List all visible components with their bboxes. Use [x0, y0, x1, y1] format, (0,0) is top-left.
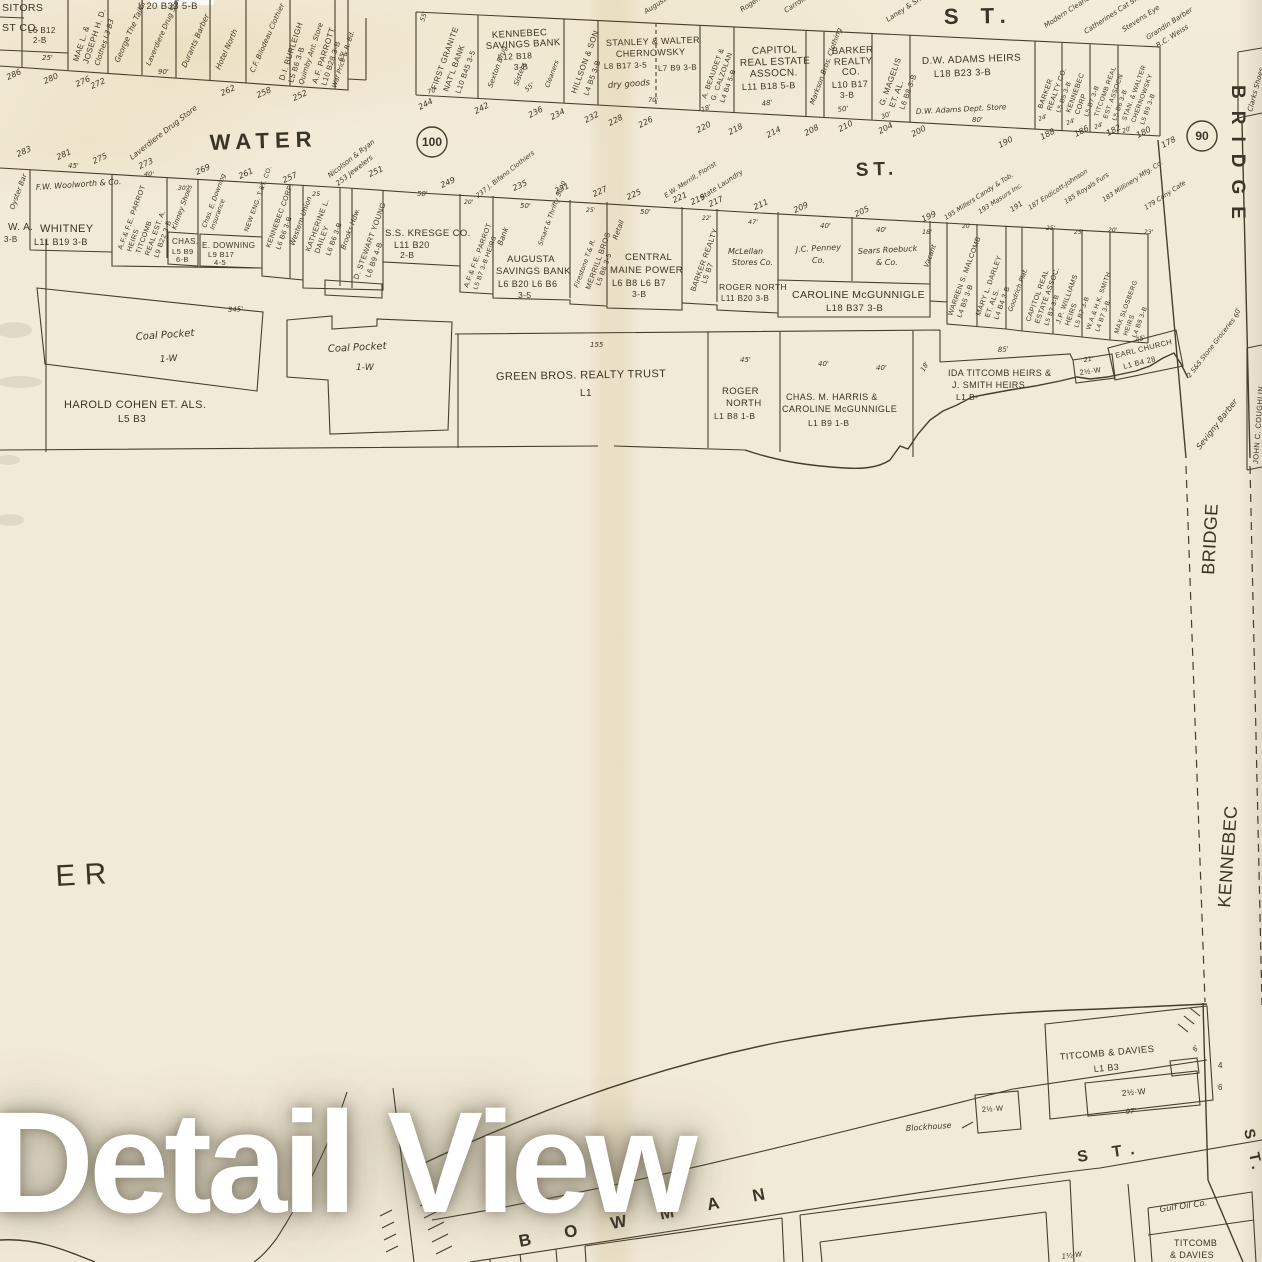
street-number: 235 — [511, 178, 529, 193]
business-label: D.W. Adams Dept. Store — [916, 102, 1007, 116]
parcel-lot-label: L6 B12 — [28, 26, 56, 35]
parcel-owner-label: CAPITOL — [752, 44, 798, 57]
parcel-lot-label: 3-B — [840, 90, 855, 100]
parcel-owner-label: D.W. ADAMS HEIRS — [922, 53, 1022, 67]
route-number: 90 — [1195, 129, 1209, 143]
dimension-label: 40' — [876, 364, 887, 372]
dimension-label: 18' — [700, 103, 712, 114]
parcel-lot-label: 6-B — [176, 255, 189, 264]
dimension-label: 70' — [648, 96, 658, 104]
dimension-label: 50' — [837, 105, 849, 114]
street-number: 205 — [853, 204, 871, 219]
street-number: 178 — [1160, 135, 1178, 150]
business-label: Cleaners — [543, 59, 560, 89]
street-number: 200 — [910, 124, 928, 139]
parcel-owner-label: CO. — [842, 66, 860, 78]
business-label: Co. — [812, 256, 825, 265]
parcel-lot-label: L11 B20 — [394, 240, 430, 250]
street-number: 272 — [89, 76, 107, 91]
watermark: Detail View — [0, 1080, 1252, 1246]
parcel-owner-label: MAINE POWER — [610, 265, 683, 276]
business-label: Rogers — [739, 0, 764, 14]
dimension-label: 40' — [144, 170, 154, 178]
parcel-owner-label: STANLEY & WALTER — [606, 35, 700, 48]
atlas-map-page: SITORS ST CO. L6 B12 2-B MAE L. & JOSEPH… — [0, 0, 1262, 1262]
dimension-label: 24' — [1093, 121, 1104, 131]
parcel-owner-label: CHAS. — [172, 237, 198, 246]
street-number: 180 — [1135, 125, 1153, 140]
building-label: Coal Pocket — [328, 341, 388, 355]
river-name-partial: E R — [55, 857, 108, 893]
street-number: 208 — [803, 123, 821, 138]
parcel-owner-label: SITORS — [2, 2, 43, 14]
street-number: 261 — [237, 166, 255, 181]
business-label: 179 Cony Cafe — [1143, 179, 1187, 212]
paper-stains — [0, 322, 42, 526]
parcel-owner-label: ROGER NORTH — [719, 282, 787, 292]
building-label: 2½·W — [1079, 365, 1102, 377]
parcel-owner-label: CAROLINE McGUNNIGLE — [792, 289, 925, 301]
business-label: J.C. Penney — [794, 243, 842, 254]
parcel-lot-label: 3-5 — [518, 290, 532, 300]
business-label: 237 J. Bifano Clothiers — [474, 149, 536, 200]
business-label: 191 — [1009, 200, 1025, 214]
parcel-lot-label: L6 B20 L6 B6 — [498, 279, 557, 289]
dimension-label: 50' — [417, 190, 428, 198]
parcel-owner-label: E. DOWNING — [202, 241, 255, 250]
dimension-label: 25 — [312, 190, 320, 198]
parcel-owner-label: GREEN BROS. REALTY TRUST — [496, 368, 667, 383]
parcel-lot-label: L7 B9 3-B — [658, 63, 697, 73]
parcel-lot-label: L10 B17 — [832, 79, 869, 90]
dimension-label: 80' — [972, 116, 983, 124]
bridge-name-word: KENNEBEC — [1214, 805, 1241, 908]
dimension-label: 24' — [1037, 113, 1048, 123]
dimension-label: 30' — [880, 110, 892, 121]
parcel-owner-label: CHERNOWSKY — [616, 47, 686, 59]
dimension-label: 22' — [702, 215, 712, 222]
street-name-water-st: ST. — [855, 159, 898, 181]
street-name-top-st: S T. — [944, 3, 1014, 29]
parcel-lot-label: L11 B20 3-B — [721, 294, 769, 303]
dimension-label: 20' — [1108, 227, 1118, 234]
street-number: 244 — [417, 97, 435, 112]
dimension-label: 18' — [922, 228, 932, 236]
dimension-label: 25' — [586, 207, 596, 214]
dimension-label: 25' — [42, 54, 53, 62]
parcel-owner-label: REAL ESTATE — [740, 56, 811, 69]
street-number: 211 — [752, 197, 770, 212]
parcel-owner-label: J. SMITH HEIRS — [952, 380, 1025, 390]
street-number: 182 — [1105, 123, 1123, 138]
parcel-lot-label: 3-B — [632, 289, 646, 299]
business-label: Stores Co. — [732, 258, 773, 267]
street-number: 218 — [727, 122, 745, 137]
street-number: 269 — [194, 162, 212, 177]
business-label: Sears Roebuck — [858, 244, 918, 256]
parcel-lot-label: L11 B18 5-B — [742, 80, 796, 92]
parcel-lot-label: L1 B3 — [1093, 1062, 1119, 1074]
street-number: 273 — [137, 156, 155, 171]
business-label: Bank — [495, 225, 510, 246]
business-label: Carrolls Perfume — [783, 0, 836, 15]
street-number: 242 — [473, 101, 491, 116]
business-label: Brooks Hdw. — [339, 207, 361, 251]
dimension-label: 20' — [464, 199, 474, 206]
business-label: & Co. — [876, 258, 898, 267]
dimension-label: 47' — [748, 218, 758, 226]
business-label: Hotel North — [214, 27, 240, 70]
street-number: 190 — [997, 135, 1015, 150]
street-number: 234 — [549, 107, 567, 122]
street-number: 262 — [219, 83, 237, 98]
north-west-block: SITORS ST CO. L6 B12 2-B MAE L. & JOSEPH… — [0, 0, 366, 103]
dimension-label: 24' — [1065, 117, 1076, 127]
street-number: 209 — [792, 200, 810, 215]
dimension-label: 50' — [640, 208, 651, 216]
parcel-lot-label: 3-B — [4, 235, 18, 244]
street-number: 286 — [5, 67, 23, 82]
dimension-label: 55' — [523, 81, 536, 94]
dimension-label: 25' — [1046, 225, 1056, 232]
street-number: 276 — [74, 74, 92, 89]
dimension-label: 60' — [1232, 307, 1242, 319]
street-number: 258 — [255, 85, 273, 100]
business-label: Laverdiere Drug Store — [128, 103, 199, 162]
street-number: 281 — [55, 147, 73, 162]
business-label: Oyster Bar — [8, 172, 29, 211]
parcel-lot-label: L11 B19 3-B — [34, 237, 88, 247]
dimension-label: 18' — [919, 360, 931, 373]
parcel-owner-label: IDA TITCOMB HEIRS & — [948, 368, 1051, 378]
dimension-label: 85' — [998, 345, 1009, 354]
dimension-label: 25' — [1074, 229, 1084, 236]
parcel-lot-label: L1 B9 1-B — [808, 418, 849, 428]
dimension-label: 20' — [1121, 125, 1132, 135]
parcel-lot-label: L6 B8 L6 B7 — [612, 278, 666, 288]
business-label: George The Tailor — [113, 0, 149, 64]
street-number: 227 — [591, 184, 609, 199]
parcel-lot-label: L18 B37 3-B — [826, 303, 883, 314]
street-number: 220 — [695, 120, 713, 135]
dimension-label: 4 — [1218, 1061, 1223, 1070]
parcel-owner-label: ROGER — [722, 386, 759, 397]
parcel-lot-label: L1 B8 1-B — [714, 411, 755, 421]
parcel-owner-label: SAVINGS BANK — [496, 266, 571, 277]
parcel-owner-label: NORTH — [726, 398, 762, 409]
parcel-owner-label: CHAS. M. HARRIS & — [786, 392, 878, 402]
street-number: 280 — [42, 71, 60, 86]
street-number: 275 — [91, 151, 109, 166]
parcel-owner-label: W. A. — [8, 222, 33, 233]
dimension-label: 23' — [1144, 229, 1154, 236]
street-number: 251 — [367, 164, 385, 179]
map-canvas: SITORS ST CO. L6 B12 2-B MAE L. & JOSEPH… — [0, 0, 1262, 1262]
business-label: 2 S&S Stone Groceries — [1185, 316, 1237, 379]
parcel-lot-label: 4-5 — [214, 258, 226, 267]
dimension-label: 45' — [68, 162, 79, 170]
parcel-owner-label: AUGUSTA — [507, 254, 555, 265]
building-label: 1-W — [160, 354, 179, 365]
street-number: 283 — [15, 144, 33, 159]
parcel-owner-label: S.S. KRESGE CO. — [385, 228, 471, 239]
business-label: C.F. Bilodeau Clothier — [249, 1, 287, 74]
business-label: Sevigny Barber — [1194, 397, 1239, 451]
street-number: 249 — [439, 175, 457, 190]
dimension-label: 21' — [1083, 355, 1094, 364]
street-number: 257 — [281, 170, 299, 185]
street-name-water: WATER — [209, 126, 318, 155]
parcel-lot-label: L5 B3 — [118, 414, 146, 425]
parcel-owner-label: ASSOCN. — [750, 67, 798, 80]
dimension-label: 40' — [876, 226, 887, 234]
parcel-lot-label: 2-B — [400, 250, 414, 260]
street-number: 186 — [1073, 124, 1091, 139]
business-label: dry goods — [608, 78, 651, 91]
street-number: 228 — [607, 113, 625, 128]
dimension-label: 40' — [820, 222, 831, 230]
dimension-label: 50' — [520, 202, 531, 210]
street-names: WATER ST. S T. 100 90 BRIDGE E R — [55, 3, 1248, 893]
dimension-label: 20 — [962, 223, 970, 230]
parcel-lot-label: L1 B- — [956, 392, 978, 402]
dimension-label: 155 — [590, 341, 604, 349]
dimension-label: 30' — [178, 185, 188, 192]
bridge-name-word: BRIDGE — [1198, 503, 1222, 575]
parcel-owner-label: WHITNEY — [40, 223, 94, 235]
parcel-owner-label: CAROLINE McGUNNIGLE — [782, 404, 897, 414]
parcel-lot-label: L18 B23 3-B — [934, 67, 992, 80]
parcel-owner-label: HAROLD COHEN ET. ALS. — [64, 399, 206, 411]
parcel-lot-label: 2-B — [33, 36, 47, 45]
north-east-block: FIRST GRANITE NAT'L BANK L10 B45 3-5 55'… — [416, 0, 1195, 150]
parcel-owner-label: JOHN C. COUGHLIN — [1251, 386, 1262, 465]
building-label: Coal Pocket — [135, 328, 195, 343]
dimension-label: 40' — [818, 360, 829, 368]
parcel-lot-label: L8 B17 3-5 — [604, 60, 648, 71]
building-label: 1-W — [356, 363, 375, 373]
street-number: 214 — [765, 125, 783, 140]
parcel-owner-label: & DAVIES — [1170, 1250, 1214, 1260]
building-label: 1½·W — [1061, 1250, 1083, 1261]
parcel-owner-label: TITCOMB & DAVIES — [1059, 1044, 1155, 1063]
bridge-deck-lines — [1186, 466, 1262, 1005]
dimension-label: 48' — [761, 99, 773, 108]
street-number: 225 — [625, 187, 643, 202]
route-number: 100 — [422, 135, 442, 149]
dimension-label: 45' — [740, 356, 751, 364]
business-label: Retail — [611, 219, 625, 241]
business-label: Laney & Shoes — [885, 0, 933, 24]
street-number: 226 — [637, 115, 655, 130]
business-label: Durants Barber — [180, 12, 212, 69]
parcel-lot-label: L1 — [580, 388, 592, 399]
street-number: 210 — [837, 119, 855, 134]
business-label: McLellan — [728, 247, 763, 256]
street-number: 236 — [527, 105, 545, 120]
business-label: Augusta Plumbing — [642, 0, 701, 16]
street-number: 204 — [877, 121, 895, 136]
street-number: 252 — [291, 88, 309, 103]
business-label: F.W. Woolworth & Co. — [36, 177, 122, 192]
street-number: 232 — [583, 110, 601, 125]
dimension-label: 90' — [158, 68, 169, 76]
dimension-label: 8' — [1191, 1044, 1201, 1053]
dimension-label: 345' — [228, 305, 244, 314]
business-label: Vacant — [922, 243, 938, 268]
parcel-owner-label: CENTRAL — [625, 252, 672, 263]
